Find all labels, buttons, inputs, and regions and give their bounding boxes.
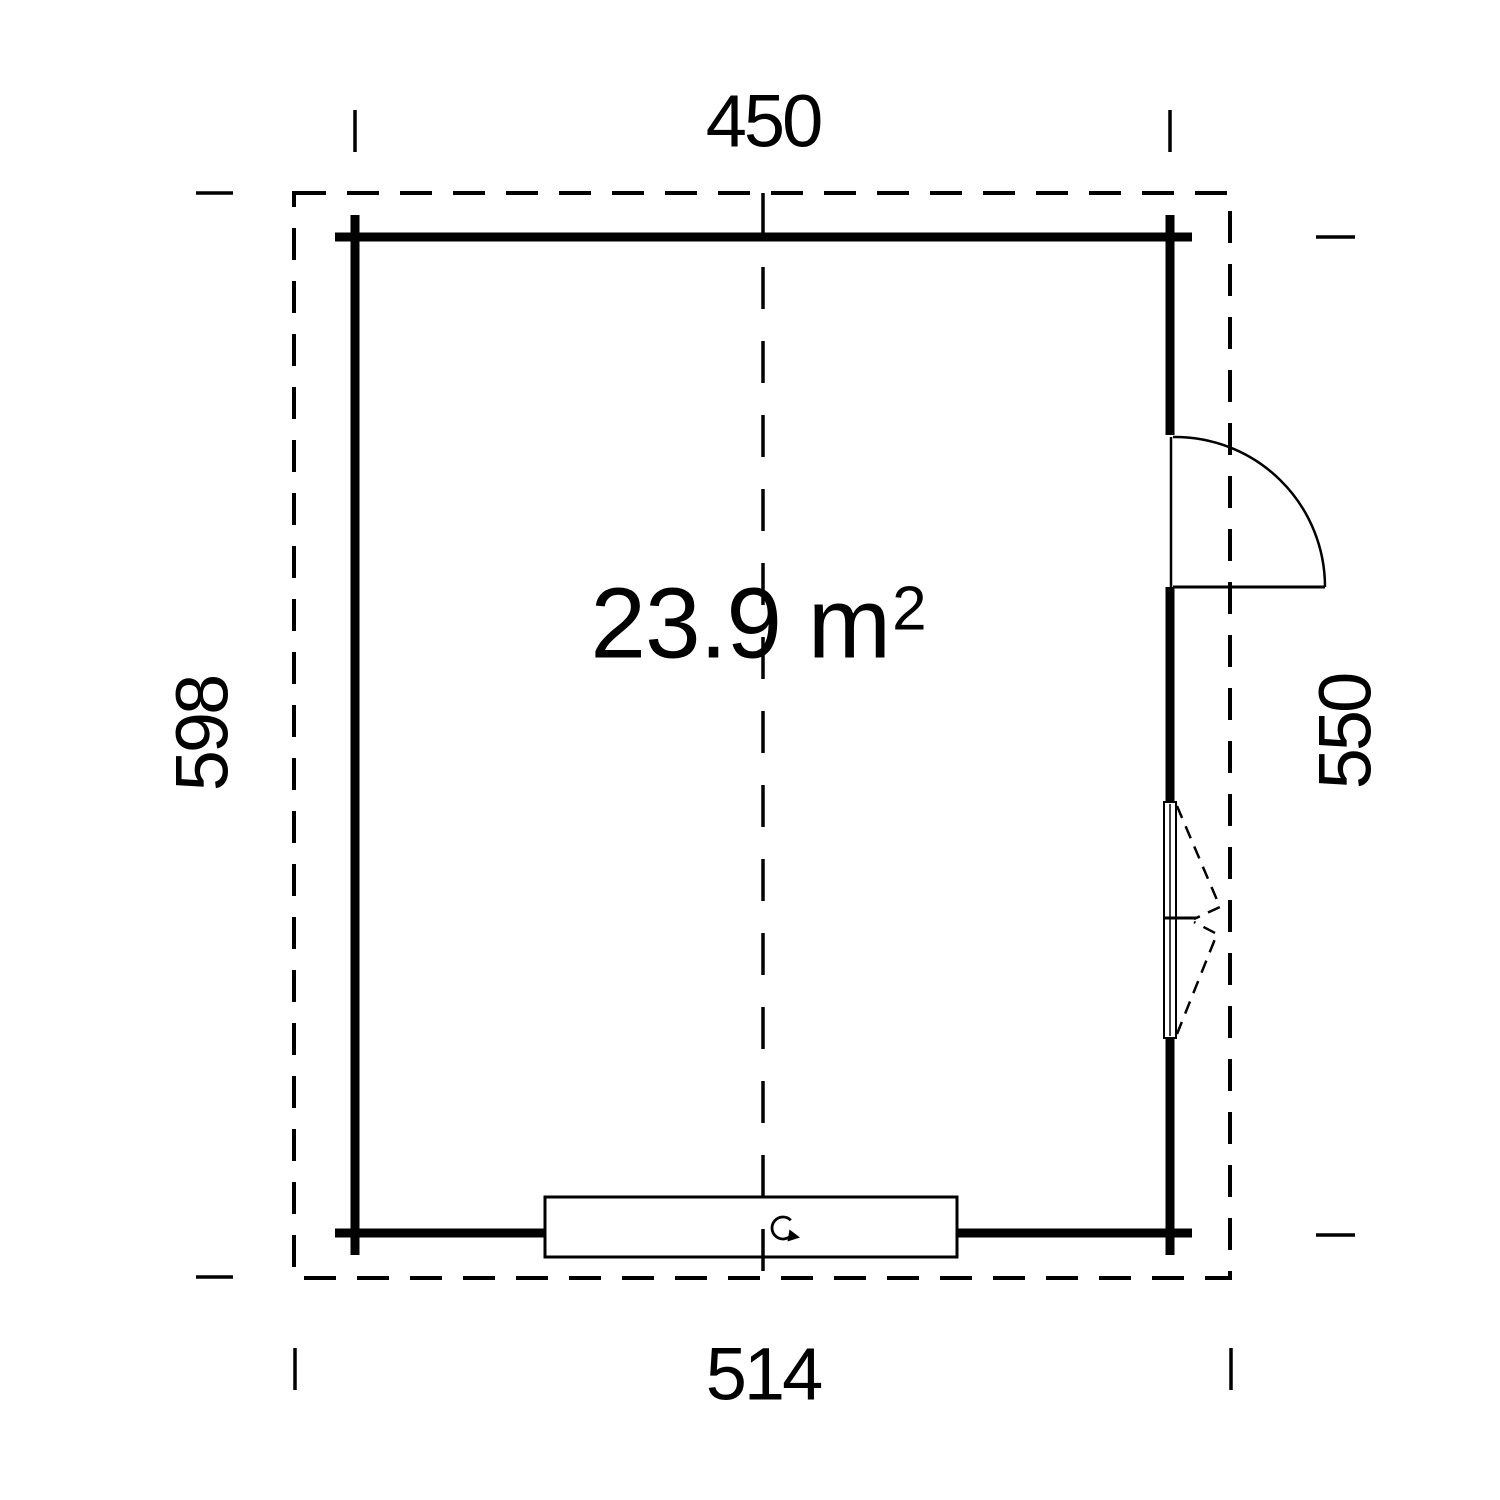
dimension-depth-right: 550 [1303,675,1388,789]
area-label: 23.9 m2 [590,567,925,682]
area-superscript: 2 [892,575,925,644]
floor-plan: 450 598 550 514 23.9 m2 [0,0,1500,1500]
dimension-width-bottom: 514 [706,1332,820,1417]
dimension-depth-left: 598 [160,677,245,791]
dimension-width-top: 450 [706,79,820,164]
garage-door-panel [545,1197,957,1257]
area-value: 23.9 m [590,568,890,680]
window-opening-dashes-lower [1177,922,1217,1034]
window-opening-dashes-upper [1177,806,1220,919]
door-swing-arc-icon [1173,437,1325,587]
